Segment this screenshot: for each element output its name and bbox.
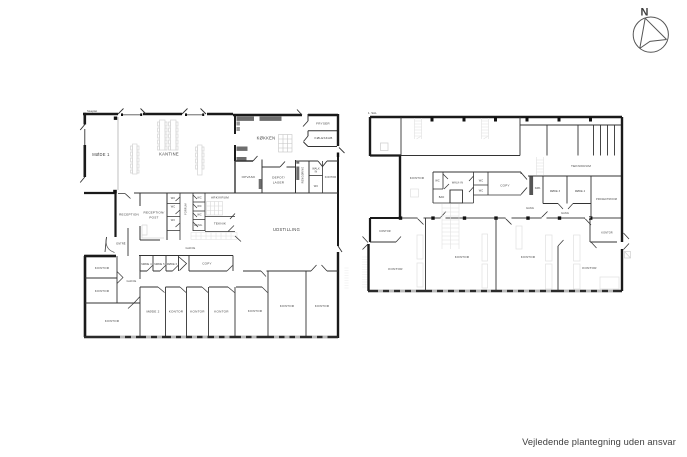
svg-text:WC: WC <box>197 204 202 208</box>
svg-text:FRYSER: FRYSER <box>316 122 330 126</box>
svg-text:KONTOR: KONTOR <box>248 309 263 313</box>
svg-text:LAGER: LAGER <box>273 181 285 185</box>
svg-text:MØDE 6: MØDE 6 <box>167 262 178 266</box>
svg-text:MØDE 3: MØDE 3 <box>550 189 561 193</box>
svg-text:MØDE 4: MØDE 4 <box>575 189 586 193</box>
svg-text:KONTOR: KONTOR <box>315 304 330 308</box>
svg-text:WC: WC <box>435 179 440 183</box>
svg-text:KONTOR: KONTOR <box>190 310 205 314</box>
svg-text:IN: IN <box>315 169 318 173</box>
svg-text:KONTOR: KONTOR <box>601 231 613 235</box>
svg-text:MØDE 1: MØDE 1 <box>92 152 110 157</box>
svg-text:MØDE 5: MØDE 5 <box>154 262 165 266</box>
svg-text:WC: WC <box>171 196 176 200</box>
svg-text:WC: WC <box>479 189 484 193</box>
svg-text:KONTOR: KONTOR <box>169 310 184 314</box>
svg-text:KONTOR: KONTOR <box>379 229 391 233</box>
svg-text:MØDE 2: MØDE 2 <box>146 310 159 314</box>
svg-text:RECEPTION/: RECEPTION/ <box>144 211 165 215</box>
svg-text:GANG: GANG <box>526 206 534 210</box>
svg-text:KONTOR: KONTOR <box>455 255 470 259</box>
svg-text:Stueplan: Stueplan <box>87 109 98 113</box>
svg-text:COPY: COPY <box>202 262 212 266</box>
svg-text:WALK-IN: WALK-IN <box>452 181 463 185</box>
svg-text:RENG.: RENG. <box>194 223 203 227</box>
svg-text:KØLESKAB: KØLESKAB <box>314 136 332 140</box>
svg-text:WC: WC <box>197 196 202 200</box>
svg-text:KØK.: KØK. <box>535 186 542 190</box>
svg-text:N: N <box>641 7 649 19</box>
svg-text:POST: POST <box>149 216 158 220</box>
svg-text:FORRUM: FORRUM <box>184 203 188 215</box>
svg-text:UDSTILLING: UDSTILLING <box>273 227 300 232</box>
svg-text:WC: WC <box>479 179 484 183</box>
svg-text:ARKIVRUM: ARKIVRUM <box>211 196 229 200</box>
svg-text:TEKNIKRUM: TEKNIKRUM <box>571 164 591 168</box>
svg-text:KONTOR: KONTOR <box>214 310 229 314</box>
svg-text:GANG: GANG <box>127 279 137 283</box>
svg-text:WC: WC <box>197 213 202 217</box>
svg-text:WC: WC <box>171 218 176 222</box>
svg-text:KONTOR: KONTOR <box>280 304 295 308</box>
svg-text:WC: WC <box>314 184 319 188</box>
svg-text:KONTOR: KONTOR <box>388 267 403 271</box>
svg-text:KONTOR: KONTOR <box>410 176 425 180</box>
svg-text:KONTOR: KONTOR <box>582 266 597 270</box>
svg-text:KONTOR: KONTOR <box>95 266 110 270</box>
svg-text:GANG: GANG <box>186 246 196 250</box>
svg-text:RENGØRING: RENGØRING <box>301 167 305 184</box>
svg-text:GANG: GANG <box>561 211 569 215</box>
svg-text:DEPOT/: DEPOT/ <box>272 176 285 180</box>
svg-text:OPVASK: OPVASK <box>242 175 256 179</box>
svg-text:RECEPTION: RECEPTION <box>119 213 139 217</box>
svg-text:KØKKEN: KØKKEN <box>257 136 276 141</box>
svg-text:PROJECTROOM: PROJECTROOM <box>596 197 617 201</box>
svg-text:TEKNIK: TEKNIK <box>214 222 227 226</box>
svg-text:KONTOR: KONTOR <box>95 289 110 293</box>
svg-text:KONTOR: KONTOR <box>325 175 337 179</box>
svg-text:BAD: BAD <box>439 195 445 199</box>
svg-text:1. SAL: 1. SAL <box>368 111 377 115</box>
svg-text:KONTOR: KONTOR <box>521 255 536 259</box>
svg-text:KANTINE: KANTINE <box>159 152 179 157</box>
svg-text:COPY: COPY <box>500 184 510 188</box>
svg-text:MØDE 4: MØDE 4 <box>141 262 152 266</box>
svg-text:KONTOR: KONTOR <box>105 319 120 323</box>
svg-text:Vejledende plantegning uden an: Vejledende plantegning uden ansvar <box>522 437 676 447</box>
svg-text:WC: WC <box>171 205 176 209</box>
